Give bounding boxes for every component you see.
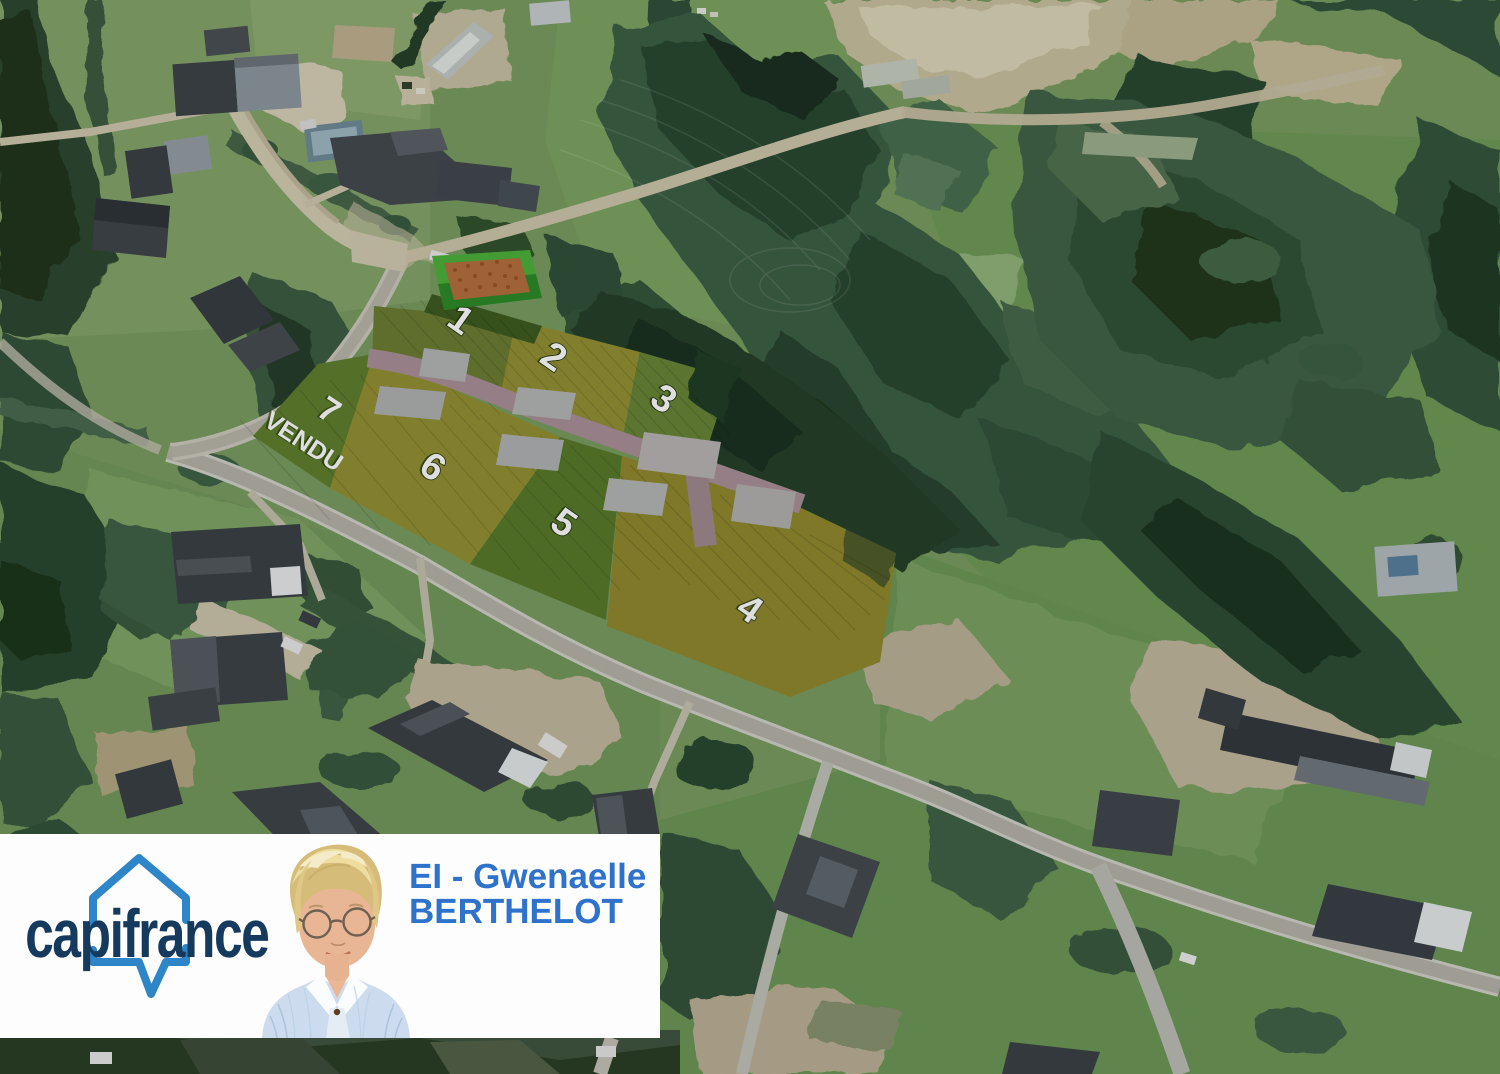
- svg-text:EI - Gwenaelle: EI - Gwenaelle: [409, 857, 646, 896]
- svg-text:BERTHELOT: BERTHELOT: [409, 892, 623, 931]
- svg-text:capifrance: capifrance: [25, 896, 268, 972]
